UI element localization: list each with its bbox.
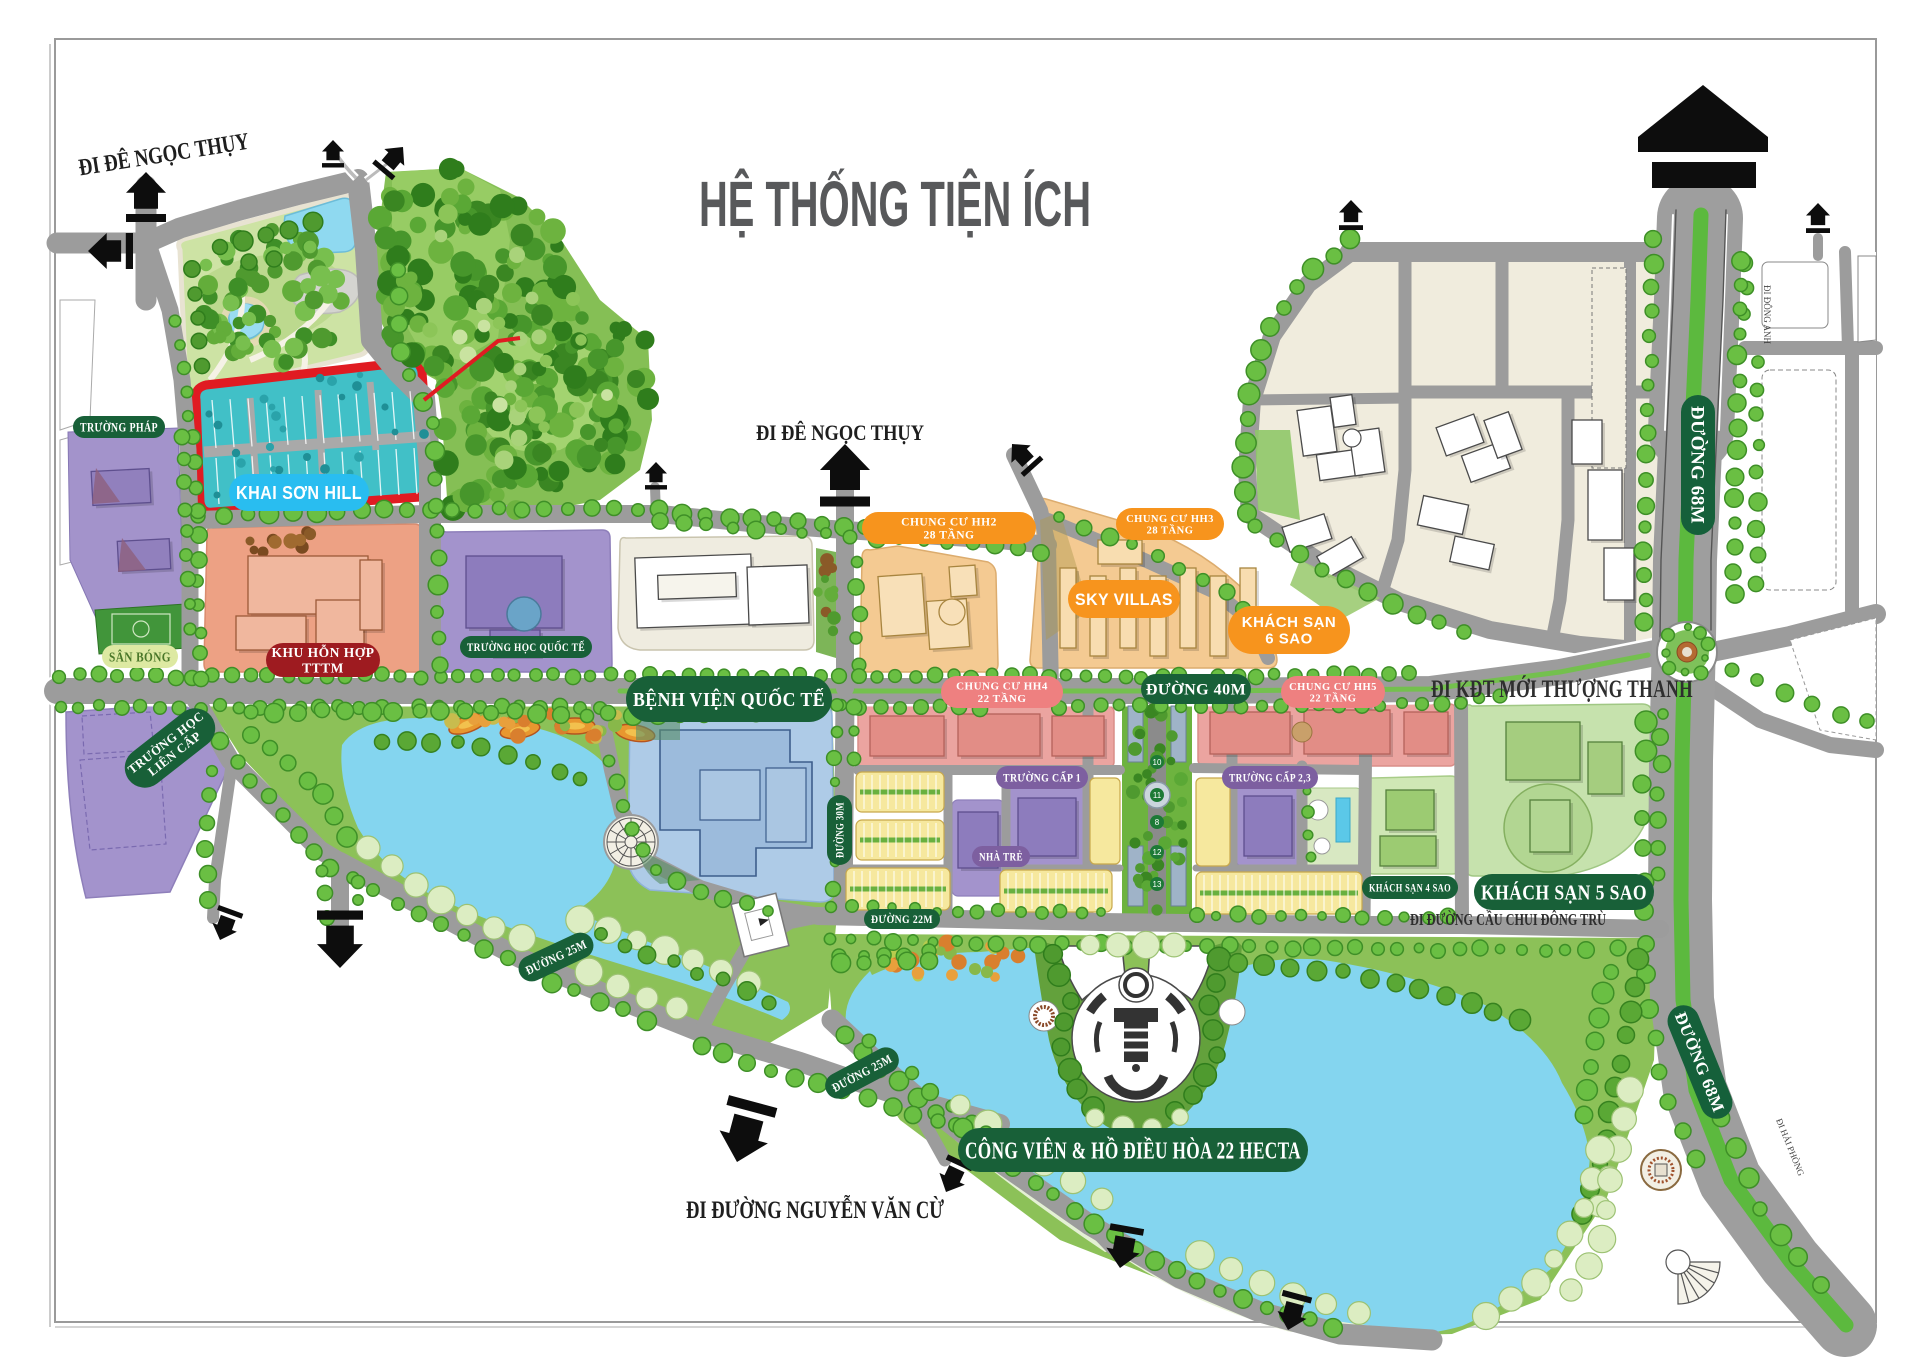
svg-text:ĐƯỜNG 22M: ĐƯỜNG 22M	[871, 912, 933, 926]
svg-text:SKY VILLAS: SKY VILLAS	[1075, 590, 1173, 609]
svg-text:CHUNG CƯ HH3: CHUNG CƯ HH3	[1126, 514, 1214, 525]
svg-text:10: 10	[1153, 758, 1162, 767]
svg-text:22 TẦNG: 22 TẦNG	[1310, 692, 1357, 705]
svg-text:TRƯỜNG CẤP 1: TRƯỜNG CẤP 1	[1003, 770, 1081, 785]
svg-text:NHÀ TRẺ: NHÀ TRẺ	[979, 850, 1023, 864]
svg-text:11: 11	[1153, 791, 1162, 800]
svg-text:TTTM: TTTM	[302, 660, 344, 675]
svg-text:KHÁCH SẠN 5 SAO: KHÁCH SẠN 5 SAO	[1481, 880, 1647, 904]
svg-text:TRƯỜNG HỌC QUỐC TẾ: TRƯỜNG HỌC QUỐC TẾ	[467, 639, 585, 654]
svg-text:12: 12	[1153, 848, 1162, 857]
svg-text:ĐƯỜNG 30M: ĐƯỜNG 30M	[833, 802, 847, 858]
svg-text:KHÁCH SẠN 4 SAO: KHÁCH SẠN 4 SAO	[1369, 881, 1451, 895]
svg-text:ĐI KĐT MỚI THƯỢNG THANH: ĐI KĐT MỚI THƯỢNG THANH	[1431, 675, 1693, 703]
svg-text:TRƯỜNG PHÁP: TRƯỜNG PHÁP	[80, 420, 158, 434]
svg-text:KHÁCH SẠN: KHÁCH SẠN	[1242, 614, 1337, 631]
svg-text:ĐƯỜNG 68M: ĐƯỜNG 68M	[1686, 406, 1708, 524]
svg-text:28 TẦNG: 28 TẦNG	[1147, 524, 1194, 537]
svg-text:SÂN BÓNG: SÂN BÓNG	[109, 648, 171, 665]
svg-text:CHUNG CƯ HH2: CHUNG CƯ HH2	[901, 516, 997, 529]
svg-text:ĐI ĐÊ NGỌC THỤY: ĐI ĐÊ NGỌC THỤY	[756, 420, 924, 445]
svg-text:CHUNG CƯ HH5: CHUNG CƯ HH5	[1289, 682, 1377, 693]
svg-text:ĐƯỜNG 40M: ĐƯỜNG 40M	[1146, 680, 1246, 699]
svg-text:TRƯỜNG CẤP 2,3: TRƯỜNG CẤP 2,3	[1229, 770, 1311, 785]
svg-text:CHUNG CƯ HH4: CHUNG CƯ HH4	[956, 681, 1048, 693]
svg-text:BỆNH VIỆN QUỐC TẾ: BỆNH VIỆN QUỐC TẾ	[633, 687, 825, 711]
svg-text:22 TẦNG: 22 TẦNG	[978, 692, 1027, 705]
svg-text:ĐI ĐƯỜNG CẦU CHUI ĐÔNG TRÙ: ĐI ĐƯỜNG CẦU CHUI ĐÔNG TRÙ	[1410, 910, 1606, 929]
svg-text:KHAI SƠN HILL: KHAI SƠN HILL	[236, 483, 362, 503]
svg-text:KHU HỖN HỢP: KHU HỖN HỢP	[272, 645, 375, 660]
svg-text:CÔNG VIÊN & HỒ ĐIỀU HÒA 22 HEC: CÔNG VIÊN & HỒ ĐIỀU HÒA 22 HECTA	[965, 1137, 1301, 1164]
svg-text:8: 8	[1155, 818, 1160, 827]
svg-text:ĐI ĐƯỜNG NGUYỄN VĂN CỪ: ĐI ĐƯỜNG NGUYỄN VĂN CỪ	[686, 1195, 944, 1224]
svg-text:13: 13	[1153, 880, 1162, 889]
svg-text:28 TẦNG: 28 TẦNG	[924, 527, 975, 542]
svg-text:ĐI ĐÔNG ANH: ĐI ĐÔNG ANH	[1762, 285, 1772, 344]
svg-text:6 SAO: 6 SAO	[1265, 631, 1313, 648]
svg-text:HỆ THỐNG TIỆN ÍCH: HỆ THỐNG TIỆN ÍCH	[699, 167, 1091, 240]
